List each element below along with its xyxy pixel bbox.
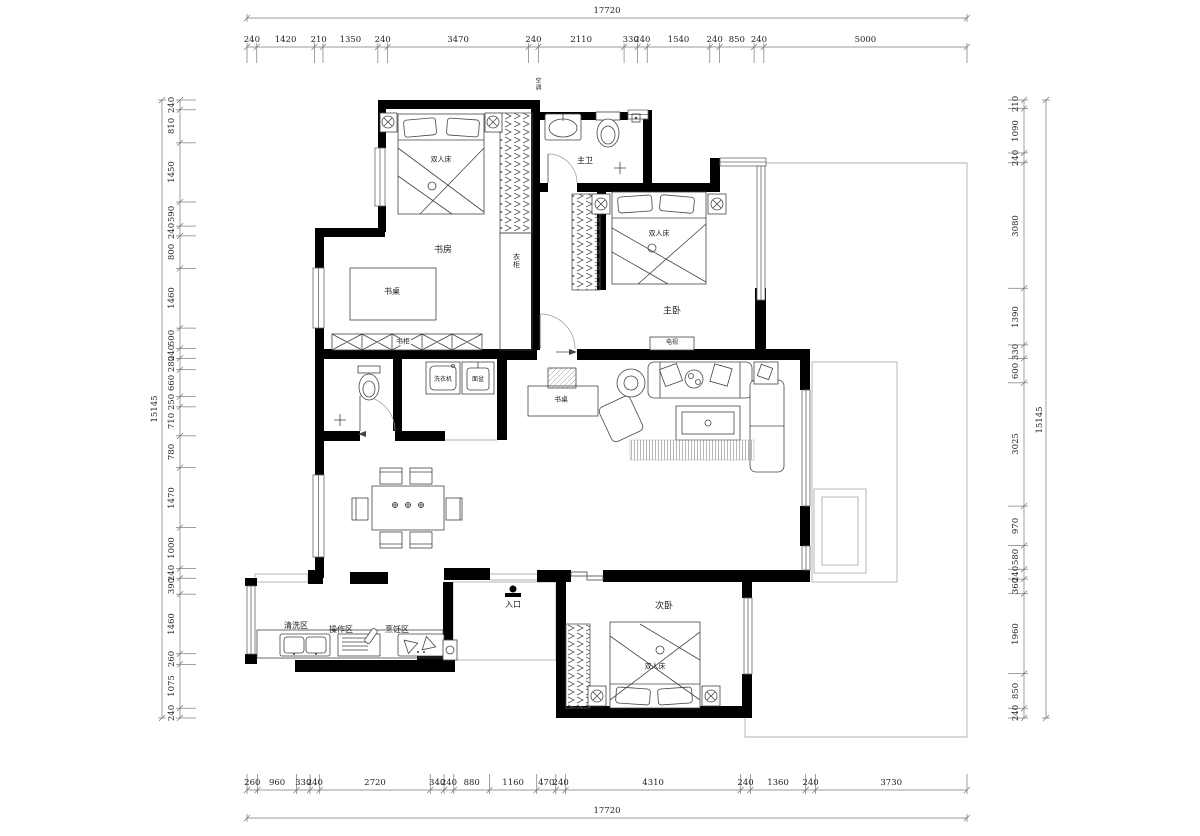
window (744, 598, 752, 674)
cutting-board (338, 628, 380, 656)
nightstand (380, 113, 397, 132)
bookcase (332, 334, 482, 350)
shower-symbol (614, 162, 626, 174)
swivel-chair (617, 369, 645, 397)
coffee-table (676, 406, 740, 440)
shower-symbol (334, 414, 346, 426)
study-desk (350, 268, 436, 320)
hall-closet (500, 233, 532, 350)
nightstand (592, 194, 610, 214)
bathroom2-door (358, 396, 395, 437)
washing-machine (426, 362, 460, 394)
living-desk (528, 368, 598, 416)
master-suite-door (540, 314, 577, 355)
window (313, 268, 324, 328)
laundry-basin (462, 362, 494, 394)
tv-cabinet (650, 337, 694, 350)
second-bed-wardrobe (566, 624, 590, 708)
study-bed (398, 114, 484, 214)
master-bed (612, 192, 706, 284)
window (802, 390, 810, 506)
second-bed-sliding-door (571, 572, 603, 580)
bathroom-sink (545, 114, 581, 140)
window (628, 110, 648, 119)
kitchen-appliance (443, 640, 457, 660)
nightstand (588, 686, 606, 706)
window (313, 475, 324, 557)
planter-inner (822, 497, 858, 565)
toilet (358, 366, 380, 400)
rug (630, 440, 754, 460)
study-wardrobe (500, 113, 532, 233)
gas-stove (398, 634, 444, 656)
entry-vestibule (453, 582, 556, 660)
kitchen-passthrough (255, 574, 308, 582)
window (247, 586, 255, 654)
second-bed (610, 622, 700, 708)
kitchen-sink (280, 634, 330, 656)
floor-plan-canvas: 书房 主卫 主卧 次卧 清洗区 操作区 烹饪区 入口 双人床 双人床 双人床 书… (0, 0, 1200, 836)
window (802, 546, 810, 570)
nightstand (485, 113, 502, 132)
toilet (596, 112, 620, 147)
floor-plan-drawing (0, 0, 1200, 836)
nightstand (708, 194, 726, 214)
master-bath-door (548, 154, 577, 183)
bay-window (757, 166, 765, 300)
dining-set (352, 468, 462, 548)
bay-window (720, 158, 766, 166)
table-decor (392, 502, 424, 508)
nightstand (702, 686, 720, 706)
armchair (598, 395, 645, 444)
entry-threshold (490, 574, 537, 580)
entry-icon (505, 586, 521, 598)
window (375, 148, 385, 206)
sofa-set (598, 362, 784, 472)
